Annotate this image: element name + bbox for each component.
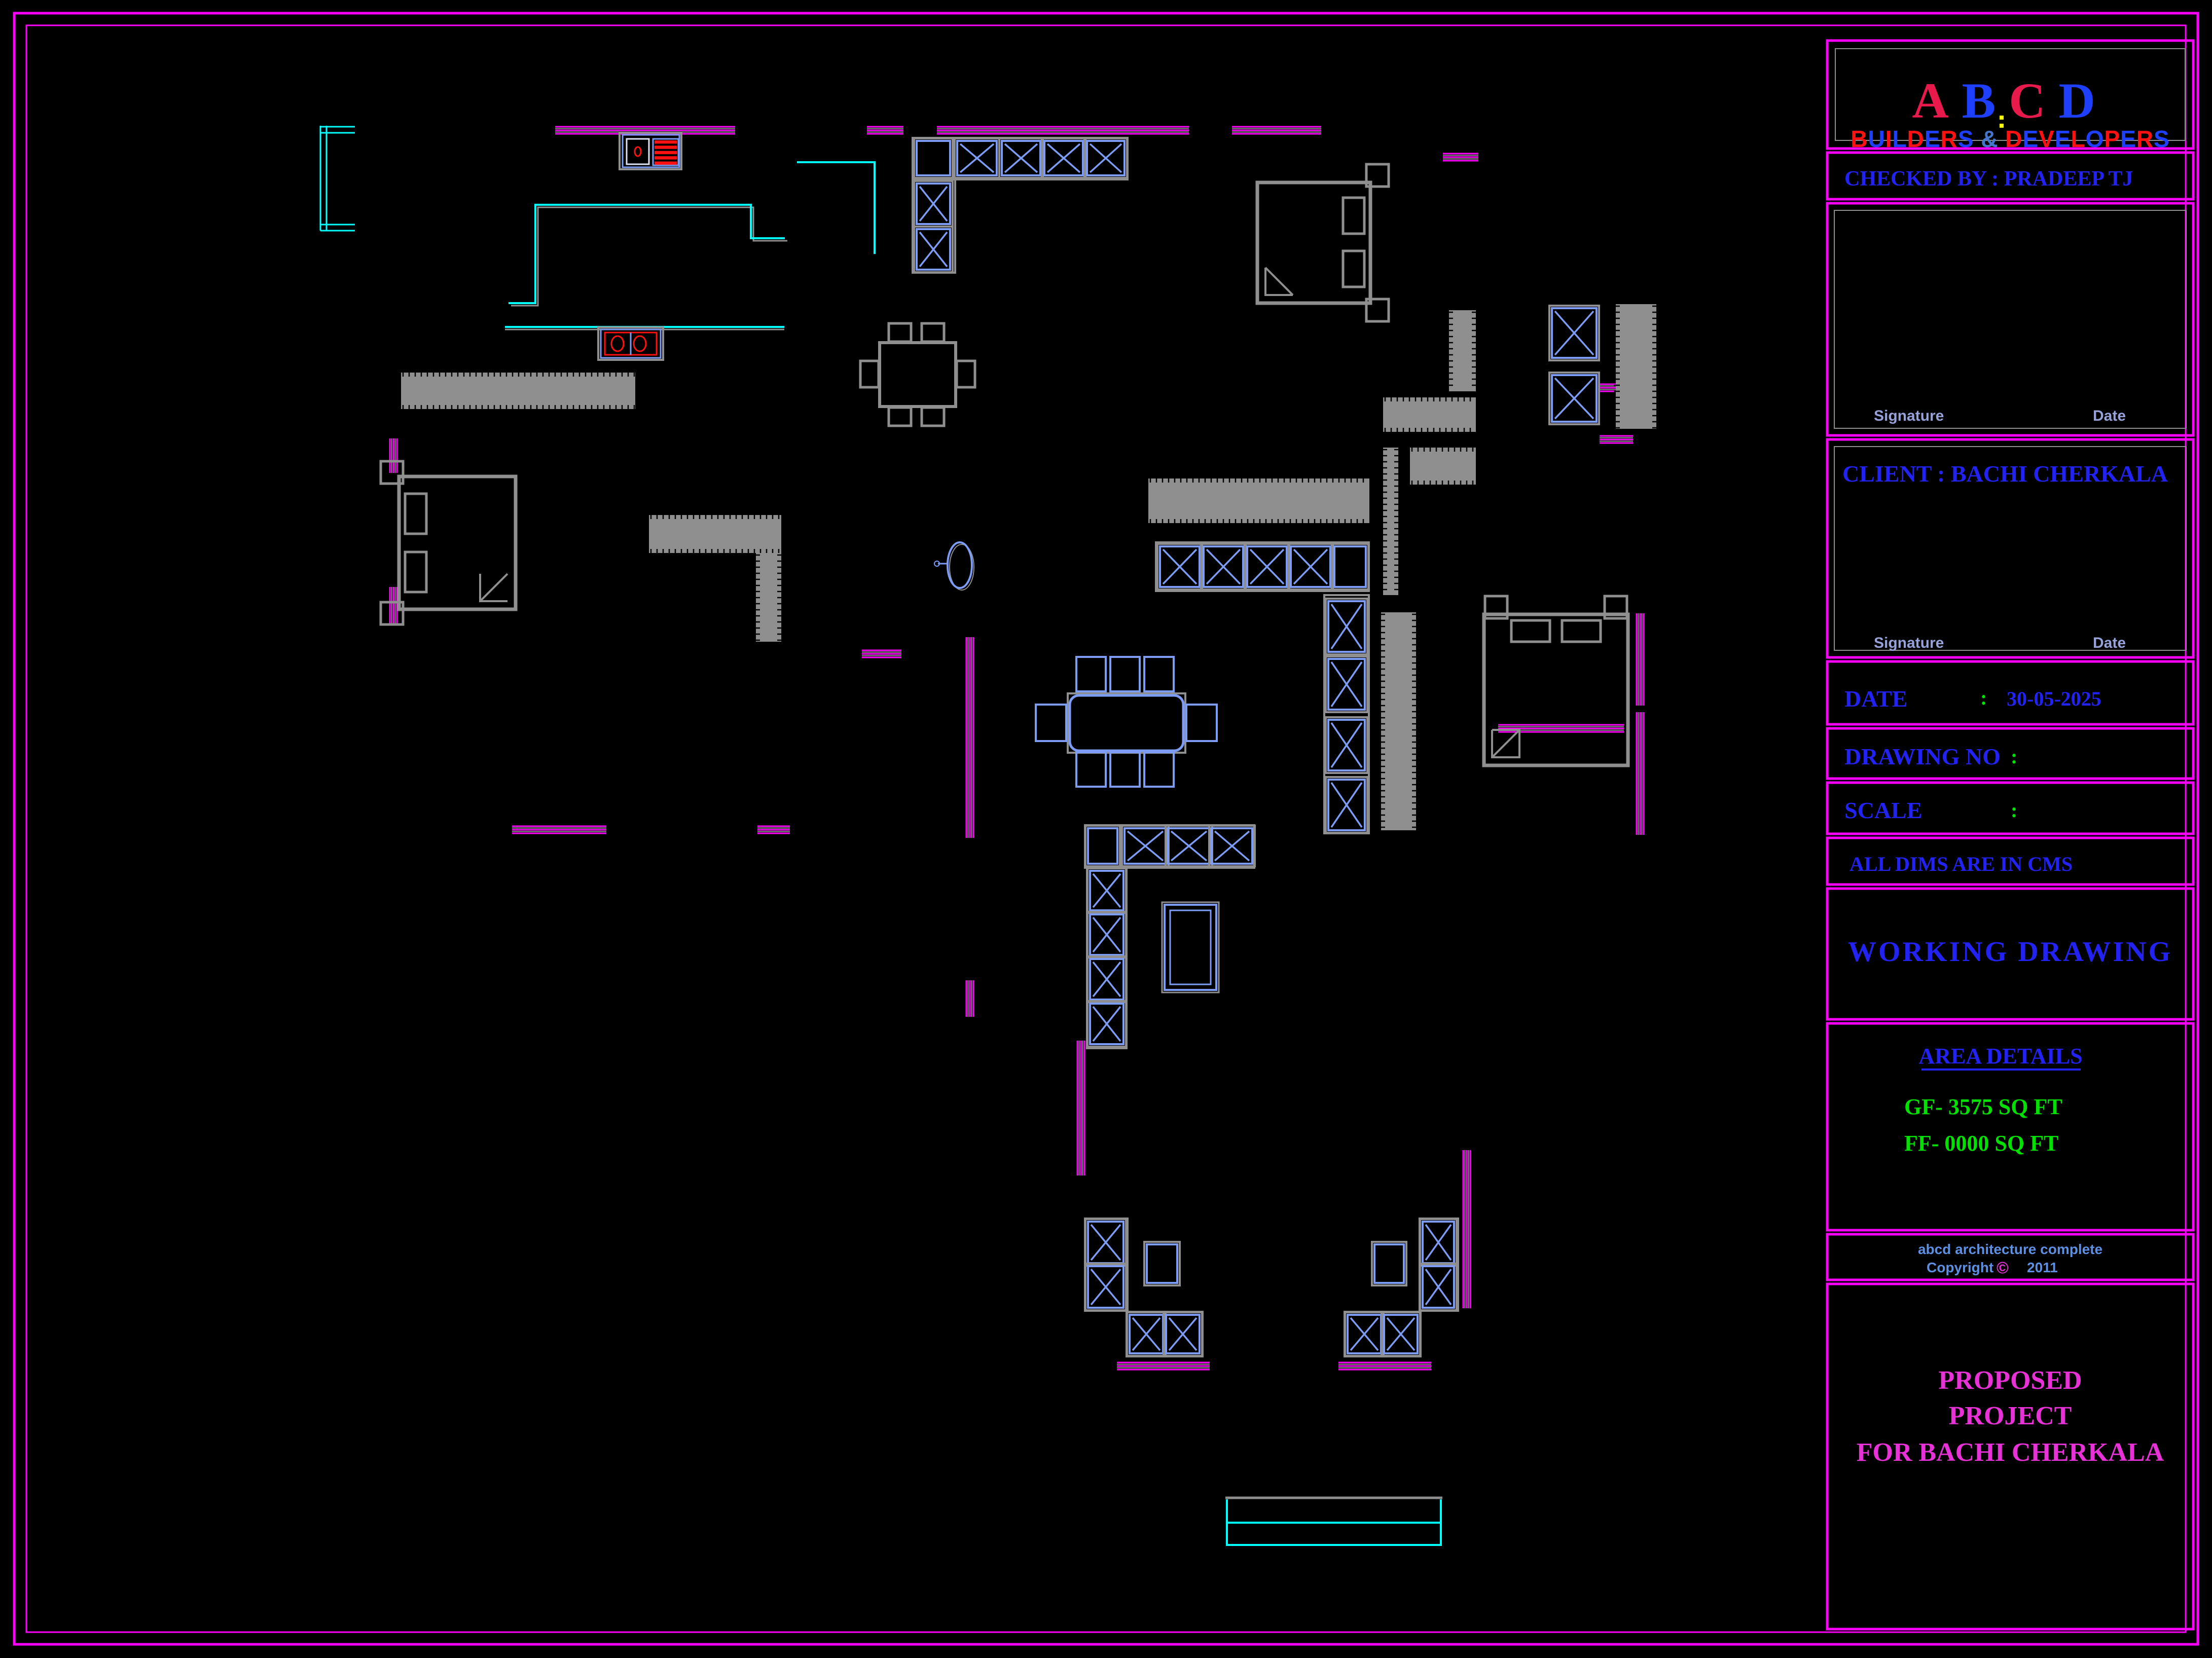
signature-label-2: Signature bbox=[1874, 635, 1944, 651]
bed-pillow bbox=[405, 552, 426, 592]
logo-letter: A bbox=[1912, 72, 1962, 129]
wash-basin bbox=[635, 147, 641, 156]
wash-basin bbox=[948, 542, 972, 588]
date-label-small: Date bbox=[2093, 408, 2126, 424]
checked-by-text: CHECKED BY : PRADEEP TJ bbox=[1844, 167, 2133, 191]
cabinet-plain bbox=[917, 141, 950, 175]
proposed-line-2: PROJECT bbox=[1949, 1402, 2072, 1430]
proposed-line-3: FOR BACHI CHERKALA bbox=[1857, 1438, 2164, 1467]
plan-rect bbox=[880, 343, 956, 407]
cabinet-plain-outer bbox=[1332, 544, 1368, 589]
sink-drain-stripe bbox=[655, 140, 677, 143]
plan-rect bbox=[1324, 595, 1369, 833]
plan-rect bbox=[1070, 695, 1183, 751]
plan-rect bbox=[1827, 203, 2193, 435]
logo-letter: B bbox=[1962, 72, 2009, 129]
drawing-no-colon: : bbox=[2011, 745, 2017, 768]
copyright-symbol: © bbox=[1997, 1259, 2009, 1277]
chair bbox=[922, 408, 944, 426]
logo-letter: D bbox=[2005, 126, 2022, 152]
hatched-wall bbox=[649, 515, 781, 553]
cabinet-plain-outer bbox=[1085, 826, 1120, 866]
plan-rect bbox=[1156, 542, 1369, 591]
chair bbox=[1110, 657, 1140, 691]
plan-rect bbox=[627, 139, 649, 164]
cad-drawing-sheet: ABCD BUILDERS & DEVELOPERS CHECKED BY : … bbox=[0, 0, 2212, 1658]
cabinet-plain bbox=[1147, 1244, 1177, 1283]
logo-letter: I bbox=[1885, 126, 1893, 152]
wash-basin bbox=[634, 336, 646, 351]
logo-letter: E bbox=[2120, 126, 2136, 152]
plan-rect bbox=[1068, 693, 1185, 753]
logo-letter: P bbox=[2104, 126, 2120, 152]
chair bbox=[1076, 657, 1106, 691]
scale-colon: : bbox=[2011, 799, 2017, 822]
logo-letter: E bbox=[2055, 126, 2071, 152]
chair bbox=[1076, 752, 1106, 787]
chair bbox=[860, 361, 879, 387]
bed-pillow bbox=[405, 494, 426, 534]
logo-letter bbox=[1998, 126, 2005, 152]
bed-fold bbox=[1492, 730, 1519, 757]
chair bbox=[1110, 752, 1140, 787]
drawing-no-label: DRAWING NO bbox=[1844, 744, 2001, 769]
copyright-year: 2011 bbox=[2027, 1260, 2058, 1275]
proposed-line-1: PROPOSED bbox=[1938, 1366, 2082, 1395]
bed-pillow bbox=[1343, 251, 1364, 287]
sink-drain-stripe bbox=[655, 156, 677, 159]
date-label: DATE bbox=[1844, 686, 1907, 712]
plan-rect bbox=[1165, 905, 1216, 990]
client-text: CLIENT : BACHI CHERKALA bbox=[1842, 461, 2168, 487]
logo-letter: L bbox=[1893, 126, 1907, 152]
logo-letter: S bbox=[1958, 126, 1974, 152]
cabinet-plain-outer bbox=[914, 138, 953, 178]
signature-label: Signature bbox=[1874, 408, 1944, 424]
logo-letter: O bbox=[2086, 126, 2105, 152]
bed-frame bbox=[399, 476, 516, 609]
logo-letter: E bbox=[1925, 126, 1941, 152]
bed-fold bbox=[1265, 268, 1293, 295]
cabinet-plain bbox=[1088, 828, 1117, 864]
bed-frame bbox=[1257, 182, 1370, 303]
hatched-wall bbox=[1383, 448, 1398, 595]
chair bbox=[1144, 657, 1174, 691]
plan-rect bbox=[1834, 210, 2186, 428]
area-details-title: AREA DETAILS bbox=[1918, 1044, 2082, 1069]
chair bbox=[1144, 752, 1174, 787]
chair bbox=[889, 323, 911, 342]
plan-rect bbox=[1170, 910, 1211, 984]
logo-letter: R bbox=[1941, 126, 1958, 152]
floor-plan-layer bbox=[14, 13, 2198, 1644]
hatched-wall bbox=[1148, 478, 1369, 523]
logo-builders-developers: BUILDERS & DEVELOPERS bbox=[1851, 126, 2169, 152]
logo-letter bbox=[1974, 126, 1981, 152]
date-label-small-2: Date bbox=[2093, 635, 2126, 651]
bed-pillow bbox=[1562, 620, 1601, 642]
firm-line: abcd architecture complete bbox=[1918, 1241, 2102, 1257]
working-drawing: WORKING DRAWING bbox=[1848, 936, 2172, 968]
sink-drain-stripe bbox=[655, 162, 677, 165]
logo-abcd: ABCD bbox=[1912, 72, 2108, 129]
date-value: 30-05-2025 bbox=[2007, 687, 2101, 710]
copyright-word: Copyright bbox=[1927, 1260, 1993, 1275]
chair bbox=[922, 323, 944, 342]
sink-drain-stripe bbox=[655, 145, 677, 149]
dims-note: ALL DIMS ARE IN CMS bbox=[1850, 853, 2073, 875]
plan-line bbox=[511, 207, 787, 306]
chair bbox=[957, 361, 975, 387]
logo-letter: S bbox=[2154, 126, 2170, 152]
logo-letter: V bbox=[2039, 126, 2055, 152]
logo-letter: B bbox=[1851, 126, 1868, 152]
hatched-wall bbox=[1410, 448, 1476, 485]
cabinet-plain-outer bbox=[1144, 1242, 1180, 1285]
bed-pillow bbox=[1343, 198, 1364, 234]
wash-basin bbox=[611, 336, 624, 351]
cabinet-plain-outer bbox=[1372, 1242, 1406, 1285]
hatched-wall bbox=[1383, 397, 1476, 432]
logo-letter: D bbox=[2058, 72, 2108, 129]
logo-letter: U bbox=[1868, 126, 1885, 152]
logo-letter: D bbox=[1907, 126, 1925, 152]
logo-letter: & bbox=[1981, 126, 1998, 152]
chair bbox=[1036, 705, 1066, 741]
date-colon: : bbox=[1980, 686, 1987, 709]
plan-line bbox=[797, 162, 875, 254]
bed-pillow bbox=[1511, 620, 1550, 642]
logo-letter: E bbox=[2022, 126, 2039, 152]
plan-line bbox=[509, 205, 785, 303]
sink-drain-stripe bbox=[655, 151, 677, 154]
area-gf: GF- 3575 SQ FT bbox=[1904, 1094, 2062, 1119]
bed-fold bbox=[480, 574, 507, 601]
logo-letter: R bbox=[2136, 126, 2154, 152]
logo-letter: C bbox=[2009, 72, 2058, 129]
cabinet-plain bbox=[1334, 546, 1366, 587]
logo-letter: L bbox=[2071, 126, 2086, 152]
hatched-wall bbox=[1616, 304, 1656, 429]
scale-label: SCALE bbox=[1844, 797, 1922, 823]
chair bbox=[1186, 705, 1217, 741]
area-ff: FF- 0000 SQ FT bbox=[1904, 1131, 2058, 1156]
hatched-wall bbox=[1381, 612, 1416, 830]
cabinet-plain bbox=[1374, 1244, 1404, 1283]
chair bbox=[889, 408, 911, 426]
title-block-layer: ABCD BUILDERS & DEVELOPERS CHECKED BY : … bbox=[1842, 72, 2172, 1467]
hatched-wall bbox=[401, 373, 635, 409]
